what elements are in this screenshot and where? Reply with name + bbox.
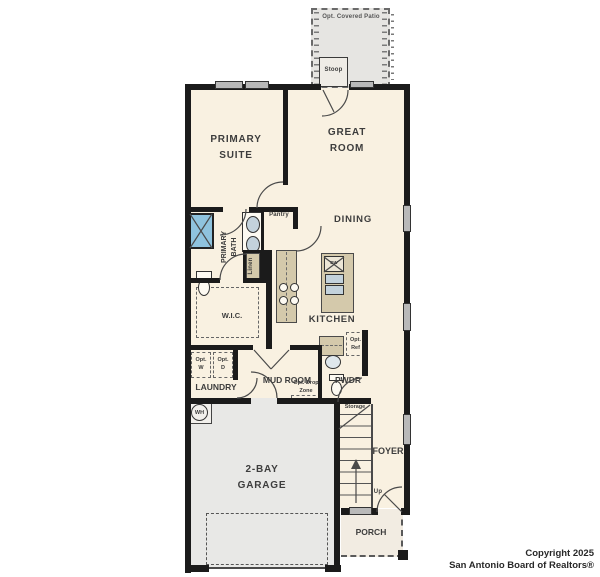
counter-dash [321,345,342,346]
great-room-label: GREAT ROOM [312,125,382,156]
shower [189,213,214,249]
cooktop-burner [279,283,288,292]
opt-ref-label: Opt. [350,337,361,343]
garage-door-line [209,567,325,569]
powder-label: PWDR [331,375,365,385]
kitchen-counter-lower [319,336,344,356]
dining-label: DINING [325,213,381,228]
wall-mudroom-bottom-right [277,398,322,404]
wall-wic-bottom [185,345,253,350]
island-sink-1 [325,274,344,284]
porch-post [398,550,408,560]
stoop-label: Stoop [319,67,348,73]
wall-left [185,84,191,573]
patio-label: Opt. Covered Patio [318,14,384,20]
pantry-label: Pantry [264,212,294,218]
wall-garage-bottom-left [185,565,209,572]
linen-label: Linen [248,252,258,280]
wall-pantry-right [293,207,298,229]
window-greatroom [350,81,374,88]
foyer-label: FOYER [366,446,410,456]
wall-bath-kitchen [266,250,272,349]
window-foyer-front [349,507,372,515]
copyright-line2: San Antonio Board of Realtors® [449,560,594,571]
kitchen-label: KITCHEN [306,314,358,325]
wall-laundry-mudroom [233,350,238,380]
wall-vanity-pantry [261,212,264,252]
wall-suite-greatroom [283,84,288,185]
wall-garage-right [334,398,340,567]
window-suite-1 [215,81,243,89]
copyright-line1: Copyright 2025 [525,548,594,559]
opt-dryer-box: Opt. D [213,352,233,378]
cooktop-burner [290,283,299,292]
opt-washer-box: Opt. W [191,352,211,378]
window-foyer-side [403,414,411,445]
wall-mudroom-bottom-left [237,398,251,404]
dishwasher-label: DW [324,260,344,265]
wall-powder-right [362,330,368,376]
mud-room-label: MUD ROOM [256,375,318,385]
wall-foyer-bottom-3 [401,508,410,515]
floor-plan: Opt. Covered Patio Stoop DW Opt. Ref Opt… [0,0,600,577]
garage-label: 2-BAY GARAGE [222,462,302,493]
wall-foyer-bottom-2 [371,508,378,515]
patio-edge-ticks-outer [391,14,394,80]
opt-dryer-label: Opt. [218,357,229,363]
wall-laundry-bottom [185,398,237,404]
water-heater: WH [191,404,208,421]
staircase [340,414,371,506]
wall-garage-bottom-right [325,565,341,572]
window-dining-upper [403,205,411,232]
powder-sink [325,355,341,369]
vanity-sink-1 [246,216,260,233]
wall-suite-bottom-left [185,207,223,212]
patio-edge-ticks-right [382,12,387,84]
garage-door-zone [206,513,328,565]
wic-label: W.I.C. [212,311,252,320]
island-sink-2 [325,285,344,295]
laundry-label: LAUNDRY [190,382,242,392]
primary-suite-label: PRIMARY SUITE [200,132,272,163]
cooktop-burner [290,296,299,305]
cooktop-burner [279,296,288,305]
storage-label: Storage [336,404,374,412]
primary-bath-label: PRIMARY BATH [220,223,242,271]
copyright-notice: Copyright 2025 San Antonio Board of Real… [449,548,594,573]
porch-label: PORCH [349,527,393,537]
wall-wic-top-left [190,278,220,283]
window-suite-2 [245,81,269,89]
opt-washer-label: Opt. [196,357,207,363]
window-dining-lower [403,303,411,331]
up-label: Up [370,489,386,495]
wall-powder-left [318,350,322,404]
